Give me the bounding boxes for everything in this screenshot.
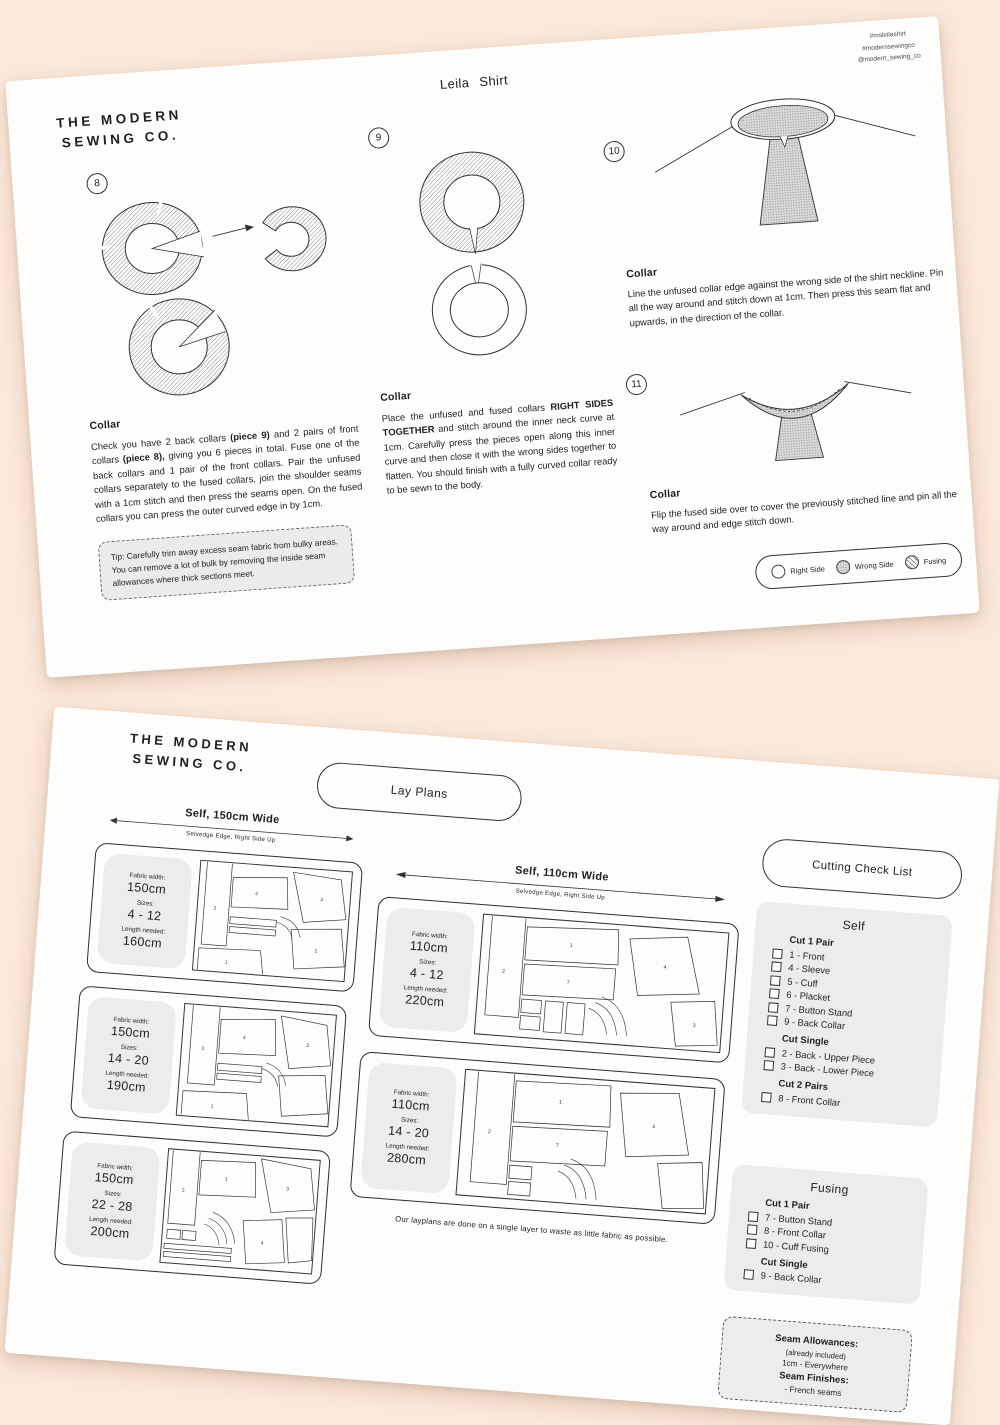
collar-folded-illustration — [672, 341, 919, 469]
layplan-diagram: 2 1 7 4 3 — [473, 913, 730, 1054]
piece-number: 7 — [567, 980, 570, 986]
legend-fusing: Fusing — [904, 553, 946, 570]
checkbox — [747, 1224, 758, 1235]
column-header-150cm: Self, 150cm Wide Selvedge Edge, Right Si… — [97, 800, 367, 850]
layplan-info-panel: Fabric width: 110cm Sizes: 14 - 20 Lengt… — [360, 1062, 457, 1194]
layplan-diagram: 2 1 7 4 — [455, 1068, 716, 1215]
piece-number: 5 — [314, 949, 317, 955]
piece-number: 7 — [556, 1143, 559, 1149]
checklist-item-label: 8 - Front Collar — [764, 1226, 827, 1241]
layplan-info-panel: Fabric width: 110cm Sizes: 4 - 12 Length… — [379, 907, 476, 1033]
step-number-badge: 11 — [625, 373, 647, 395]
tip-box: Tip: Carefully trim away excess seam fab… — [98, 525, 356, 602]
layplan-info-panel: Fabric width: 150cm Sizes: 4 - 12 Length… — [97, 853, 193, 969]
lay-plans-page: THE MODERN SEWING CO. Lay Plans Self, 15… — [5, 707, 1000, 1425]
checklist-item-label: 10 - Cuff Fusing — [763, 1239, 830, 1254]
piece-9-reference: (piece 9) — [230, 429, 270, 443]
piece-number: 4 — [663, 964, 666, 970]
fusing-checklist-panel: Fusing Cut 1 Pair 7 - Button Stand 8 - F… — [723, 1164, 928, 1305]
step-8-instructions: Check you have 2 back collars (piece 9) … — [91, 422, 364, 527]
right-side-swatch-icon — [771, 564, 786, 579]
step-number-badge: 9 — [367, 127, 389, 149]
checklist-item-label: 5 - Cuff — [787, 976, 818, 988]
step-9-instructions: Place the unfused and fused collars RIGH… — [381, 396, 618, 498]
piece-number: 1 — [559, 1100, 562, 1106]
layplan-box: Fabric width: 150cm Sizes: 4 - 12 Length… — [86, 842, 363, 992]
checklist-item-label: 7 - Button Stand — [785, 1003, 853, 1018]
layplan-info-panel: Fabric width: 150cm Sizes: 14 - 20 Lengt… — [81, 996, 177, 1114]
layplan-box: Fabric width: 150cm Sizes: 22 - 28 Lengt… — [53, 1131, 330, 1285]
section-heading: Collar — [649, 487, 681, 501]
checkbox — [743, 1269, 754, 1280]
checkbox — [771, 961, 782, 972]
step-number-badge: 10 — [603, 140, 625, 162]
self-checklist-panel: Self Cut 1 Pair 1 - Front 4 - Sleeve 5 -… — [741, 901, 953, 1127]
collar-rings-illustration — [363, 135, 588, 377]
instructions-page: #msleilashirt #modernsewingco @modern_se… — [5, 16, 979, 678]
piece-number: 4 — [255, 891, 258, 897]
checkbox — [763, 1060, 774, 1071]
layplan-diagram: 2 4 1 3 — [175, 1002, 337, 1127]
section-heading: Collar — [626, 266, 658, 280]
piece-number: 4 — [261, 1240, 264, 1246]
step-10-instructions: Line the unfused collar edge against the… — [627, 265, 949, 330]
cutting-check-list-title-pill: Cutting Check List — [761, 837, 964, 900]
legend-label: Wrong Side — [854, 559, 894, 571]
steps-10-11-column: 10 Collar Line the unfused collar edge a… — [613, 57, 972, 626]
piece-number: 3 — [693, 1023, 696, 1029]
checkbox — [746, 1238, 757, 1249]
checklist-item-label: 6 - Placket — [786, 990, 831, 1003]
legend-right-side: Right Side — [771, 561, 825, 579]
piece-number: 1 — [210, 1104, 213, 1110]
piece-number: 3 — [320, 897, 323, 903]
piece-number: 3 — [286, 1186, 289, 1192]
checkbox — [770, 975, 781, 986]
seam-allowances-box: Seam Allowances: (already included) 1cm … — [717, 1316, 913, 1413]
layplan-diagram: 2 1 3 4 — [159, 1148, 321, 1275]
piece-number: 2 — [182, 1187, 185, 1193]
wrong-side-swatch-icon — [835, 560, 850, 575]
checkbox — [761, 1092, 772, 1103]
checklist-item-label: 8 - Front Collar — [778, 1093, 841, 1108]
piece-number: 1 — [225, 960, 228, 966]
legend-label: Right Side — [790, 564, 825, 575]
fusing-swatch-icon — [904, 555, 919, 570]
layplan-box: Fabric width: 110cm Sizes: 14 - 20 Lengt… — [350, 1051, 726, 1225]
legend-label: Fusing — [923, 555, 946, 566]
checkbox — [748, 1211, 759, 1222]
checkbox — [764, 1047, 775, 1058]
checklist-item-label: 9 - Back Collar — [760, 1270, 822, 1285]
piece-number: 2 — [488, 1129, 491, 1135]
step-8-column: 8 Collar Check you have 2 back collars (… — [72, 156, 369, 601]
layplan-box: Fabric width: 150cm Sizes: 14 - 20 Lengt… — [70, 985, 347, 1137]
checkbox — [772, 948, 783, 959]
layplan-diagram: 2 4 1 3 5 — [191, 859, 353, 982]
checklist-item-label: 1 - Front — [789, 949, 825, 962]
collar-on-neckline-illustration — [641, 58, 927, 235]
brand-logo: THE MODERN SEWING CO. — [128, 729, 253, 777]
collar-pieces-illustration — [73, 178, 347, 408]
checkbox — [768, 1002, 779, 1013]
checklist-item-label: 4 - Sleeve — [788, 963, 831, 976]
piece-number: 3 — [306, 1043, 309, 1049]
checkbox — [769, 988, 780, 999]
lay-plans-title-pill: Lay Plans — [315, 761, 523, 823]
checkbox — [767, 1015, 778, 1026]
piece-number: 1 — [569, 943, 572, 949]
step-number-badge: 8 — [86, 172, 108, 194]
checklist-item-label: 9 - Back Collar — [784, 1017, 846, 1032]
piece-number: 2 — [201, 1046, 204, 1052]
piece-number: 4 — [243, 1035, 246, 1041]
piece-number: 2 — [502, 969, 505, 975]
piece-number: 2 — [213, 905, 216, 911]
fabric-side-legend: Right Side Wrong Side Fusing — [754, 542, 963, 590]
piece-number: 4 — [652, 1124, 655, 1130]
layplan-info-panel: Fabric width: 150cm Sizes: 22 - 28 Lengt… — [64, 1141, 160, 1261]
piece-number: 1 — [225, 1176, 228, 1182]
checklist-item-label: 7 - Button Stand — [765, 1212, 833, 1227]
piece-8-reference: (piece 8), — [122, 451, 165, 465]
step-9-column: 9 Collar Place the unfused and fused col… — [361, 112, 618, 498]
arrow-icon — [245, 224, 254, 232]
legend-wrong-side: Wrong Side — [835, 557, 894, 575]
layplan-box: Fabric width: 110cm Sizes: 4 - 12 Length… — [368, 896, 740, 1063]
step-11-instructions: Flip the fused side over to cover the pr… — [651, 486, 970, 537]
step-8-text: giving you 6 pieces in total. Fuse one o… — [93, 437, 363, 524]
